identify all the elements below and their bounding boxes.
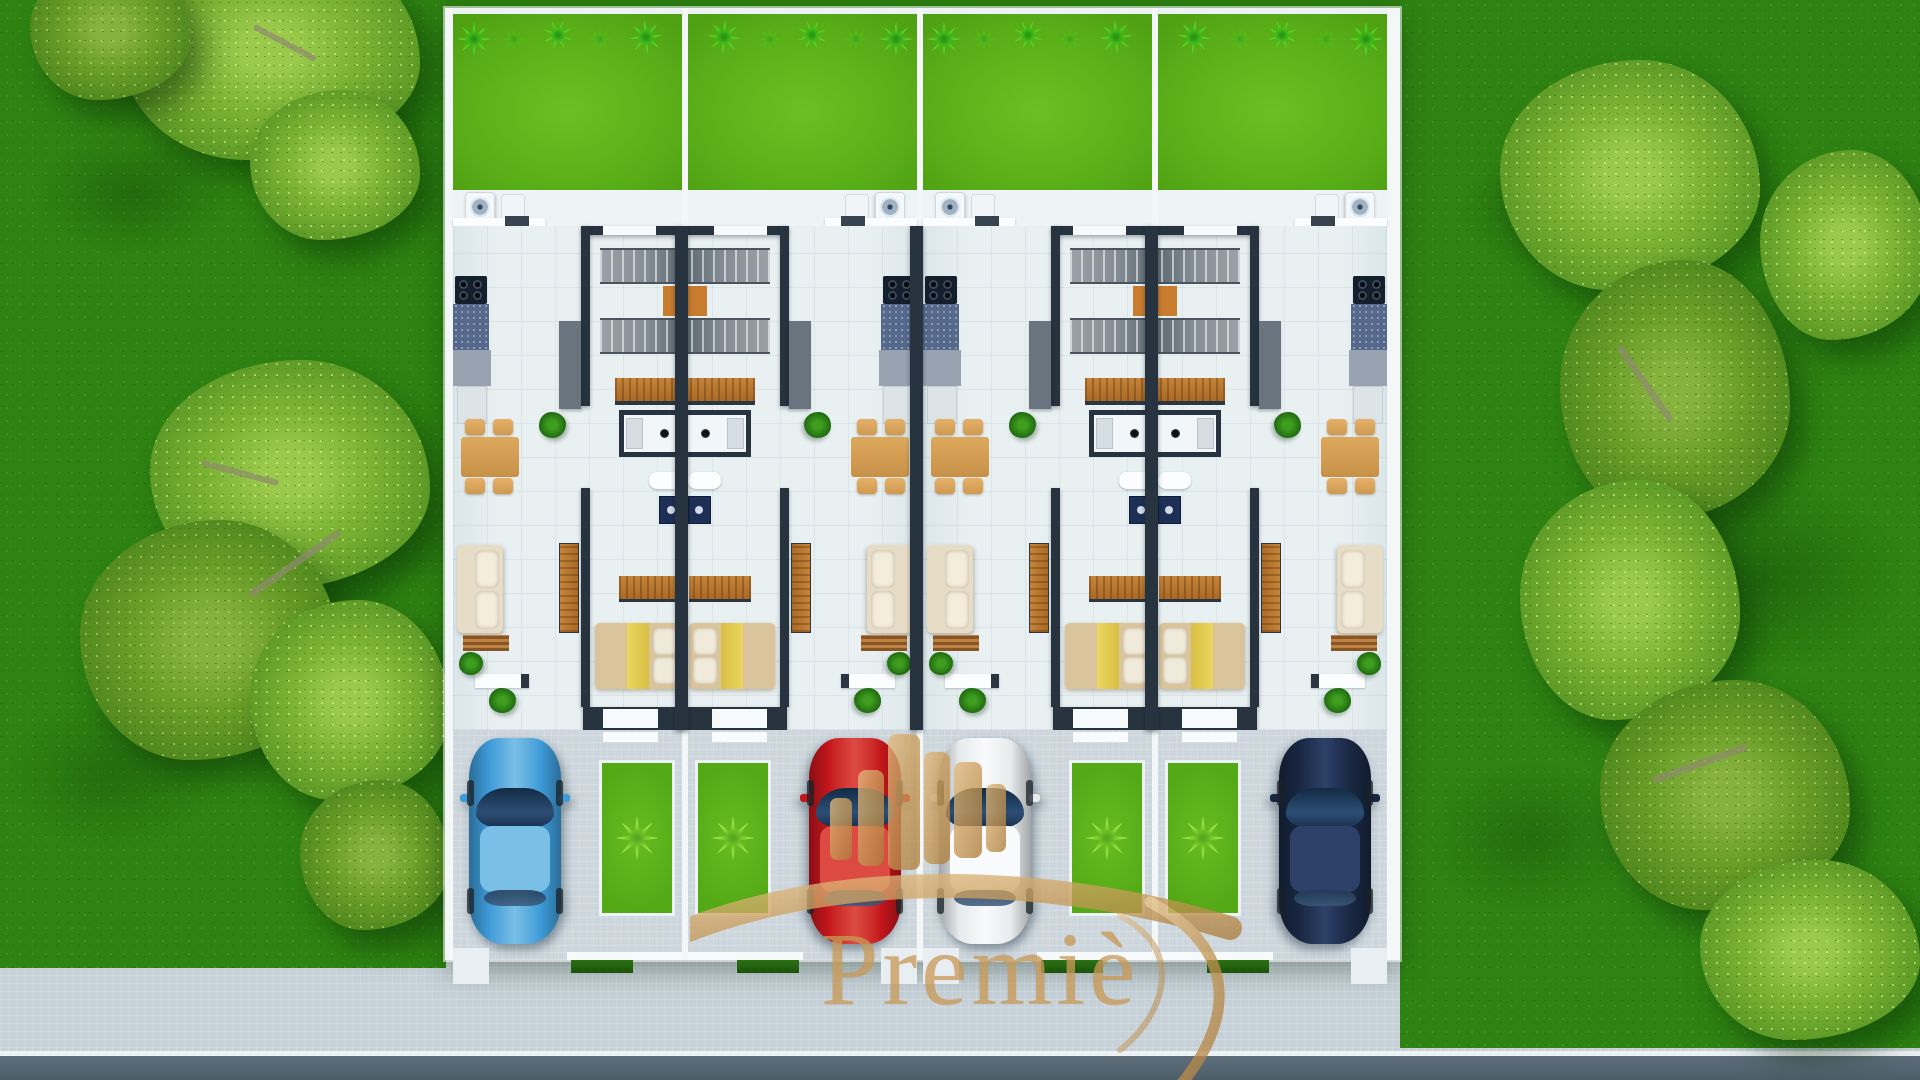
- car-windshield: [476, 788, 554, 828]
- unit-1: [453, 8, 682, 960]
- kitchen-counter: [1351, 304, 1387, 350]
- entry-porch: [881, 948, 917, 984]
- lawn-plant: [1085, 816, 1129, 860]
- driveway: [453, 730, 682, 960]
- interior-wall-lower: [780, 488, 789, 707]
- bedroom-dresser: [1159, 576, 1221, 602]
- unit-2: [688, 8, 917, 960]
- car-roof: [820, 826, 890, 892]
- front-curb: [688, 952, 803, 960]
- hall-console: [1158, 378, 1225, 405]
- tv-console: [1261, 543, 1281, 633]
- closet-end: [841, 674, 849, 688]
- backyard-lawn: [1158, 14, 1387, 190]
- interior-wall-upper: [780, 226, 789, 406]
- coffee-table: [463, 635, 509, 651]
- sink: [1171, 429, 1180, 438]
- indoor-plant: [959, 688, 986, 713]
- sofa-cushion: [871, 550, 895, 588]
- patio-block: [841, 216, 865, 226]
- indoor-plant: [1357, 652, 1381, 675]
- burner-icon: [1372, 280, 1381, 289]
- car-roof: [1290, 826, 1360, 892]
- yard-plant-faded: [1059, 28, 1081, 50]
- street-road: [0, 1056, 1920, 1080]
- vanity: [688, 472, 721, 489]
- washer: [1158, 496, 1181, 524]
- stair-flight-lower: [1158, 318, 1240, 354]
- interior-wall-lower: [581, 488, 590, 707]
- kitchen-counter-lower: [1349, 350, 1387, 386]
- car-wheel: [937, 888, 944, 914]
- rear-patio: [688, 190, 917, 226]
- yard-plant: [793, 16, 831, 54]
- tv-console: [1029, 543, 1049, 633]
- interior-wall-lower: [1250, 488, 1259, 707]
- floor-plan: [453, 226, 682, 730]
- car-wheel: [1277, 780, 1284, 806]
- dining-chair: [857, 478, 877, 494]
- car-windshield: [816, 788, 894, 828]
- dining-chair: [935, 478, 955, 494]
- rear-patio: [923, 190, 1152, 226]
- washer-door-icon: [667, 506, 675, 514]
- car-wheel: [1026, 888, 1033, 914]
- car-rear-glass: [824, 890, 886, 906]
- stair-landing: [1158, 286, 1177, 316]
- dining-chair: [1355, 419, 1375, 435]
- car-wheel: [896, 888, 903, 914]
- shower: [626, 418, 643, 449]
- wardrobe: [1259, 321, 1281, 409]
- yard-plant: [1092, 13, 1140, 61]
- washer: [688, 496, 711, 524]
- hall-console: [615, 378, 682, 405]
- car-wheel: [556, 888, 563, 914]
- backyard-lawn: [688, 14, 917, 190]
- burner-icon: [943, 291, 952, 300]
- car-wheel: [1366, 780, 1373, 806]
- patio-counter: [923, 218, 1015, 226]
- floor-plan: [688, 226, 917, 730]
- driveway: [1158, 730, 1387, 960]
- coffee-table: [861, 635, 907, 651]
- front-hedge: [737, 960, 799, 973]
- front-hedge: [571, 960, 633, 973]
- yard-plant: [1009, 16, 1047, 54]
- shower: [1197, 418, 1214, 449]
- hall-console: [688, 378, 755, 405]
- hall-console: [1085, 378, 1152, 405]
- front-window: [1073, 709, 1128, 728]
- car-windshield: [946, 788, 1024, 828]
- patio-counter: [1295, 218, 1387, 226]
- front-curb: [1037, 952, 1152, 960]
- bed-pillow: [1123, 628, 1147, 655]
- interior-wall-upper: [1051, 226, 1060, 406]
- shower: [727, 418, 744, 449]
- bed-pillow: [693, 657, 717, 684]
- yard-plant-faded: [759, 28, 781, 50]
- dining-table: [1321, 437, 1379, 477]
- dining-chair: [885, 478, 905, 494]
- bed-blanket: [1097, 623, 1119, 689]
- dining-chair: [493, 478, 513, 494]
- stair-landing: [688, 286, 707, 316]
- sofa: [927, 545, 973, 633]
- kitchen-counter: [453, 304, 489, 350]
- stair-flight-upper: [600, 248, 682, 284]
- front-curb: [567, 952, 682, 960]
- stair-flight-lower: [600, 318, 682, 354]
- red-car: [809, 738, 901, 944]
- parking-lawn-strip: [599, 760, 675, 916]
- burner-icon: [888, 280, 897, 289]
- yard-plant: [622, 13, 670, 61]
- dining-chair: [1327, 419, 1347, 435]
- car-wheel: [1366, 888, 1373, 914]
- car-wheel: [807, 780, 814, 806]
- bed-pillow: [693, 628, 717, 655]
- washer-door-icon: [1165, 506, 1173, 514]
- tree-canopy: [1700, 860, 1920, 1040]
- bed: [1065, 623, 1151, 689]
- car-wheel: [556, 780, 563, 806]
- indoor-plant: [854, 688, 881, 713]
- car-wheel: [467, 780, 474, 806]
- sofa-cushion: [475, 550, 499, 588]
- yard-plant: [700, 13, 748, 61]
- townhouse-plot: [445, 8, 1400, 960]
- bed-pillow: [653, 657, 677, 684]
- indoor-plant: [489, 688, 516, 713]
- car-wheel: [896, 780, 903, 806]
- entry-porch: [923, 948, 959, 984]
- dining-chair: [963, 419, 983, 435]
- car-rear-glass: [1294, 890, 1356, 906]
- coffee-table: [1331, 635, 1377, 651]
- yard-plant: [1170, 13, 1218, 61]
- bathroom: [1158, 410, 1221, 457]
- yard-plant: [927, 22, 961, 56]
- coffee-table: [933, 635, 979, 651]
- party-wall-3-4: [1145, 226, 1158, 730]
- sofa-cushion: [945, 550, 969, 588]
- car-windshield: [1286, 788, 1364, 828]
- car-wheel: [467, 888, 474, 914]
- patio-counter: [453, 218, 545, 226]
- patio-block: [505, 216, 529, 226]
- closet-end: [991, 674, 999, 688]
- kitchen-counter: [923, 304, 959, 350]
- patio-block: [1311, 216, 1335, 226]
- indoor-plant: [459, 652, 483, 675]
- closet-shelf: [475, 674, 529, 688]
- dining-chair: [857, 419, 877, 435]
- wardrobe: [559, 321, 581, 409]
- wardrobe: [789, 321, 811, 409]
- dining-chair: [465, 478, 485, 494]
- car-wheel: [1026, 780, 1033, 806]
- sofa-cushion: [871, 591, 895, 629]
- yard-plant-faded: [845, 28, 867, 50]
- closet-end: [521, 674, 529, 688]
- burner-icon: [473, 280, 482, 289]
- parking-lawn-strip: [1165, 760, 1241, 916]
- tree-canopy: [1560, 260, 1790, 520]
- unit-3: [923, 8, 1152, 960]
- sink: [1130, 429, 1139, 438]
- bathroom: [1089, 410, 1152, 457]
- burner-icon: [1372, 291, 1381, 300]
- unit-4: [1158, 8, 1387, 960]
- driveway: [923, 730, 1152, 960]
- burner-icon: [459, 291, 468, 300]
- parking-lawn-strip: [1069, 760, 1145, 916]
- ac-fan-icon: [880, 197, 900, 217]
- closet-shelf: [841, 674, 895, 688]
- patio-counter: [825, 218, 917, 226]
- stove: [1353, 276, 1385, 304]
- rear-window: [1073, 226, 1126, 235]
- car-rear-glass: [954, 890, 1016, 906]
- front-step: [1073, 732, 1128, 742]
- floor-plan: [1158, 226, 1387, 730]
- indoor-plant: [1274, 412, 1301, 438]
- dining-table: [931, 437, 989, 477]
- tv-console: [559, 543, 579, 633]
- yard-plant-faded: [1229, 28, 1251, 50]
- bed: [1159, 623, 1245, 689]
- stair-flight-lower: [1070, 318, 1152, 354]
- indoor-plant: [1009, 412, 1036, 438]
- dining-chair: [1327, 478, 1347, 494]
- indoor-plant: [804, 412, 831, 438]
- burner-icon: [459, 280, 468, 289]
- front-step: [1182, 732, 1237, 742]
- burner-icon: [929, 291, 938, 300]
- car-wheel: [937, 780, 944, 806]
- site-plan-render: Premiè: [0, 0, 1920, 1080]
- yard-plant-faded: [1315, 28, 1337, 50]
- yard-plant: [879, 22, 913, 56]
- lawn-plant: [711, 816, 755, 860]
- front-window: [712, 709, 767, 728]
- burner-icon: [1358, 291, 1367, 300]
- sofa: [457, 545, 503, 633]
- closet-shelf: [945, 674, 999, 688]
- ac-fan-icon: [1350, 197, 1370, 217]
- bed-blanket: [627, 623, 649, 689]
- party-wall-1-2: [675, 226, 688, 730]
- rear-window: [1184, 226, 1237, 235]
- car-roof: [950, 826, 1020, 892]
- front-step: [712, 732, 767, 742]
- washer-door-icon: [695, 506, 703, 514]
- bed-pillow: [1123, 657, 1147, 684]
- bed-blanket: [1191, 623, 1213, 689]
- front-hedge: [1041, 960, 1103, 973]
- kitchen-counter-lower: [453, 350, 491, 386]
- front-step: [603, 732, 658, 742]
- lawn-plant: [615, 816, 659, 860]
- ac-fan-icon: [470, 197, 490, 217]
- tree-canopy: [1760, 150, 1920, 340]
- rear-patio: [453, 190, 682, 226]
- front-window: [603, 709, 658, 728]
- rear-patio: [1158, 190, 1387, 226]
- bed-pillow: [1163, 657, 1187, 684]
- navy-car: [1279, 738, 1371, 944]
- bedroom-dresser: [689, 576, 751, 602]
- sofa-cushion: [1341, 550, 1365, 588]
- floor-plan: [923, 226, 1152, 730]
- yard-plant: [1349, 22, 1383, 56]
- stair-flight-upper: [1070, 248, 1152, 284]
- party-wall-2-3: [910, 226, 923, 730]
- entry-porch: [453, 948, 489, 984]
- car-wheel: [1277, 888, 1284, 914]
- dining-table: [461, 437, 519, 477]
- dining-chair: [493, 419, 513, 435]
- bedroom-dresser: [619, 576, 681, 602]
- stair-flight-upper: [1158, 248, 1240, 284]
- kitchen-counter-lower: [923, 350, 961, 386]
- wardrobe: [1029, 321, 1051, 409]
- car-rear-glass: [484, 890, 546, 906]
- closet-end: [1311, 674, 1319, 688]
- tree-canopy: [1500, 60, 1760, 290]
- backyard-lawn: [923, 14, 1152, 190]
- stair-flight-upper: [688, 248, 770, 284]
- bathroom: [619, 410, 682, 457]
- tree-canopy: [300, 780, 450, 930]
- indoor-plant: [1324, 688, 1351, 713]
- driveway: [688, 730, 917, 960]
- patio-block: [975, 216, 999, 226]
- dining-table: [851, 437, 909, 477]
- dining-chair: [935, 419, 955, 435]
- interior-wall-upper: [581, 226, 590, 406]
- dining-chair: [885, 419, 905, 435]
- indoor-plant: [539, 412, 566, 438]
- yard-plant-faded: [503, 28, 525, 50]
- bedroom-dresser: [1089, 576, 1151, 602]
- burner-icon: [473, 291, 482, 300]
- ac-fan-icon: [940, 197, 960, 217]
- burner-icon: [929, 280, 938, 289]
- dining-chair: [963, 478, 983, 494]
- closet-shelf: [1311, 674, 1365, 688]
- stove: [455, 276, 487, 304]
- yard-plant-faded: [589, 28, 611, 50]
- dining-chair: [1355, 478, 1375, 494]
- burner-icon: [943, 280, 952, 289]
- sink: [701, 429, 710, 438]
- tree-canopy: [250, 90, 420, 240]
- bed: [689, 623, 775, 689]
- stair-flight-lower: [688, 318, 770, 354]
- front-window: [1182, 709, 1237, 728]
- tree-canopy: [250, 600, 450, 800]
- dining-chair: [465, 419, 485, 435]
- bed-blanket: [721, 623, 743, 689]
- tv-console: [791, 543, 811, 633]
- burner-icon: [1358, 280, 1367, 289]
- sofa: [1337, 545, 1383, 633]
- front-curb: [1158, 952, 1273, 960]
- washer-door-icon: [1137, 506, 1145, 514]
- rear-window: [603, 226, 656, 235]
- indoor-plant: [887, 652, 911, 675]
- yard-plant-faded: [973, 28, 995, 50]
- yard-plant: [1263, 16, 1301, 54]
- sofa: [867, 545, 913, 633]
- sofa-cushion: [475, 591, 499, 629]
- entry-porch: [1351, 948, 1387, 984]
- sofa-cushion: [945, 591, 969, 629]
- bed: [595, 623, 681, 689]
- sofa-cushion: [1341, 591, 1365, 629]
- blue-car: [469, 738, 561, 944]
- interior-wall-lower: [1051, 488, 1060, 707]
- sink: [660, 429, 669, 438]
- stove: [925, 276, 957, 304]
- bed-pillow: [653, 628, 677, 655]
- burner-icon: [888, 291, 897, 300]
- shower: [1096, 418, 1113, 449]
- backyard-lawn: [453, 14, 682, 190]
- front-hedge: [1207, 960, 1269, 973]
- rear-window: [714, 226, 767, 235]
- lawn-plant: [1181, 816, 1225, 860]
- yard-plant: [539, 16, 577, 54]
- parking-lawn-strip: [695, 760, 771, 916]
- bathroom: [688, 410, 751, 457]
- indoor-plant: [929, 652, 953, 675]
- car-wheel: [807, 888, 814, 914]
- vanity: [1158, 472, 1191, 489]
- interior-wall-upper: [1250, 226, 1259, 406]
- car-roof: [480, 826, 550, 892]
- white-car: [939, 738, 1031, 944]
- yard-plant: [457, 22, 491, 56]
- bed-pillow: [1163, 628, 1187, 655]
